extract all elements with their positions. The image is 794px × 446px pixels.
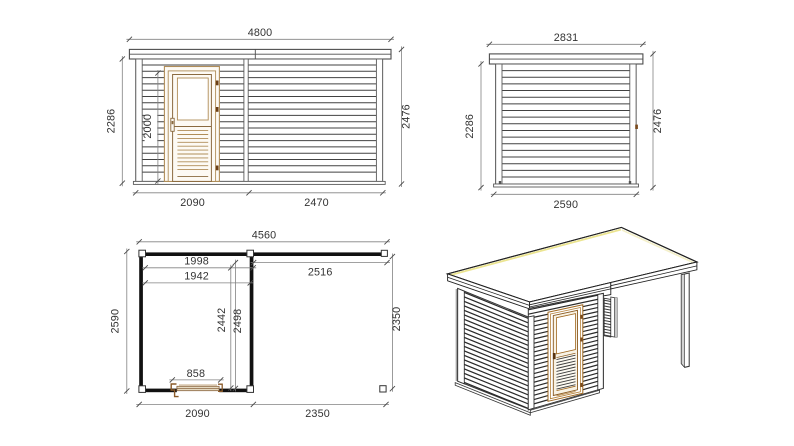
svg-text:1942: 1942 xyxy=(184,271,209,283)
svg-text:4800: 4800 xyxy=(248,27,273,39)
svg-text:2090: 2090 xyxy=(180,197,205,209)
svg-text:2516: 2516 xyxy=(308,266,333,278)
svg-text:2498: 2498 xyxy=(232,309,244,334)
svg-text:4560: 4560 xyxy=(252,230,277,242)
svg-text:2350: 2350 xyxy=(391,307,403,332)
svg-text:2350: 2350 xyxy=(305,408,330,420)
svg-text:2476: 2476 xyxy=(400,104,412,129)
svg-text:2476: 2476 xyxy=(652,109,664,134)
svg-text:858: 858 xyxy=(187,368,205,380)
svg-text:2000: 2000 xyxy=(142,114,154,139)
svg-text:2590: 2590 xyxy=(553,199,578,211)
svg-text:2470: 2470 xyxy=(304,197,329,209)
svg-text:2090: 2090 xyxy=(185,408,210,420)
svg-text:2590: 2590 xyxy=(110,309,122,334)
svg-text:1998: 1998 xyxy=(184,256,209,268)
svg-text:2442: 2442 xyxy=(216,308,228,333)
svg-text:2831: 2831 xyxy=(554,32,579,44)
svg-text:2286: 2286 xyxy=(105,109,117,134)
svg-text:2286: 2286 xyxy=(464,114,476,139)
